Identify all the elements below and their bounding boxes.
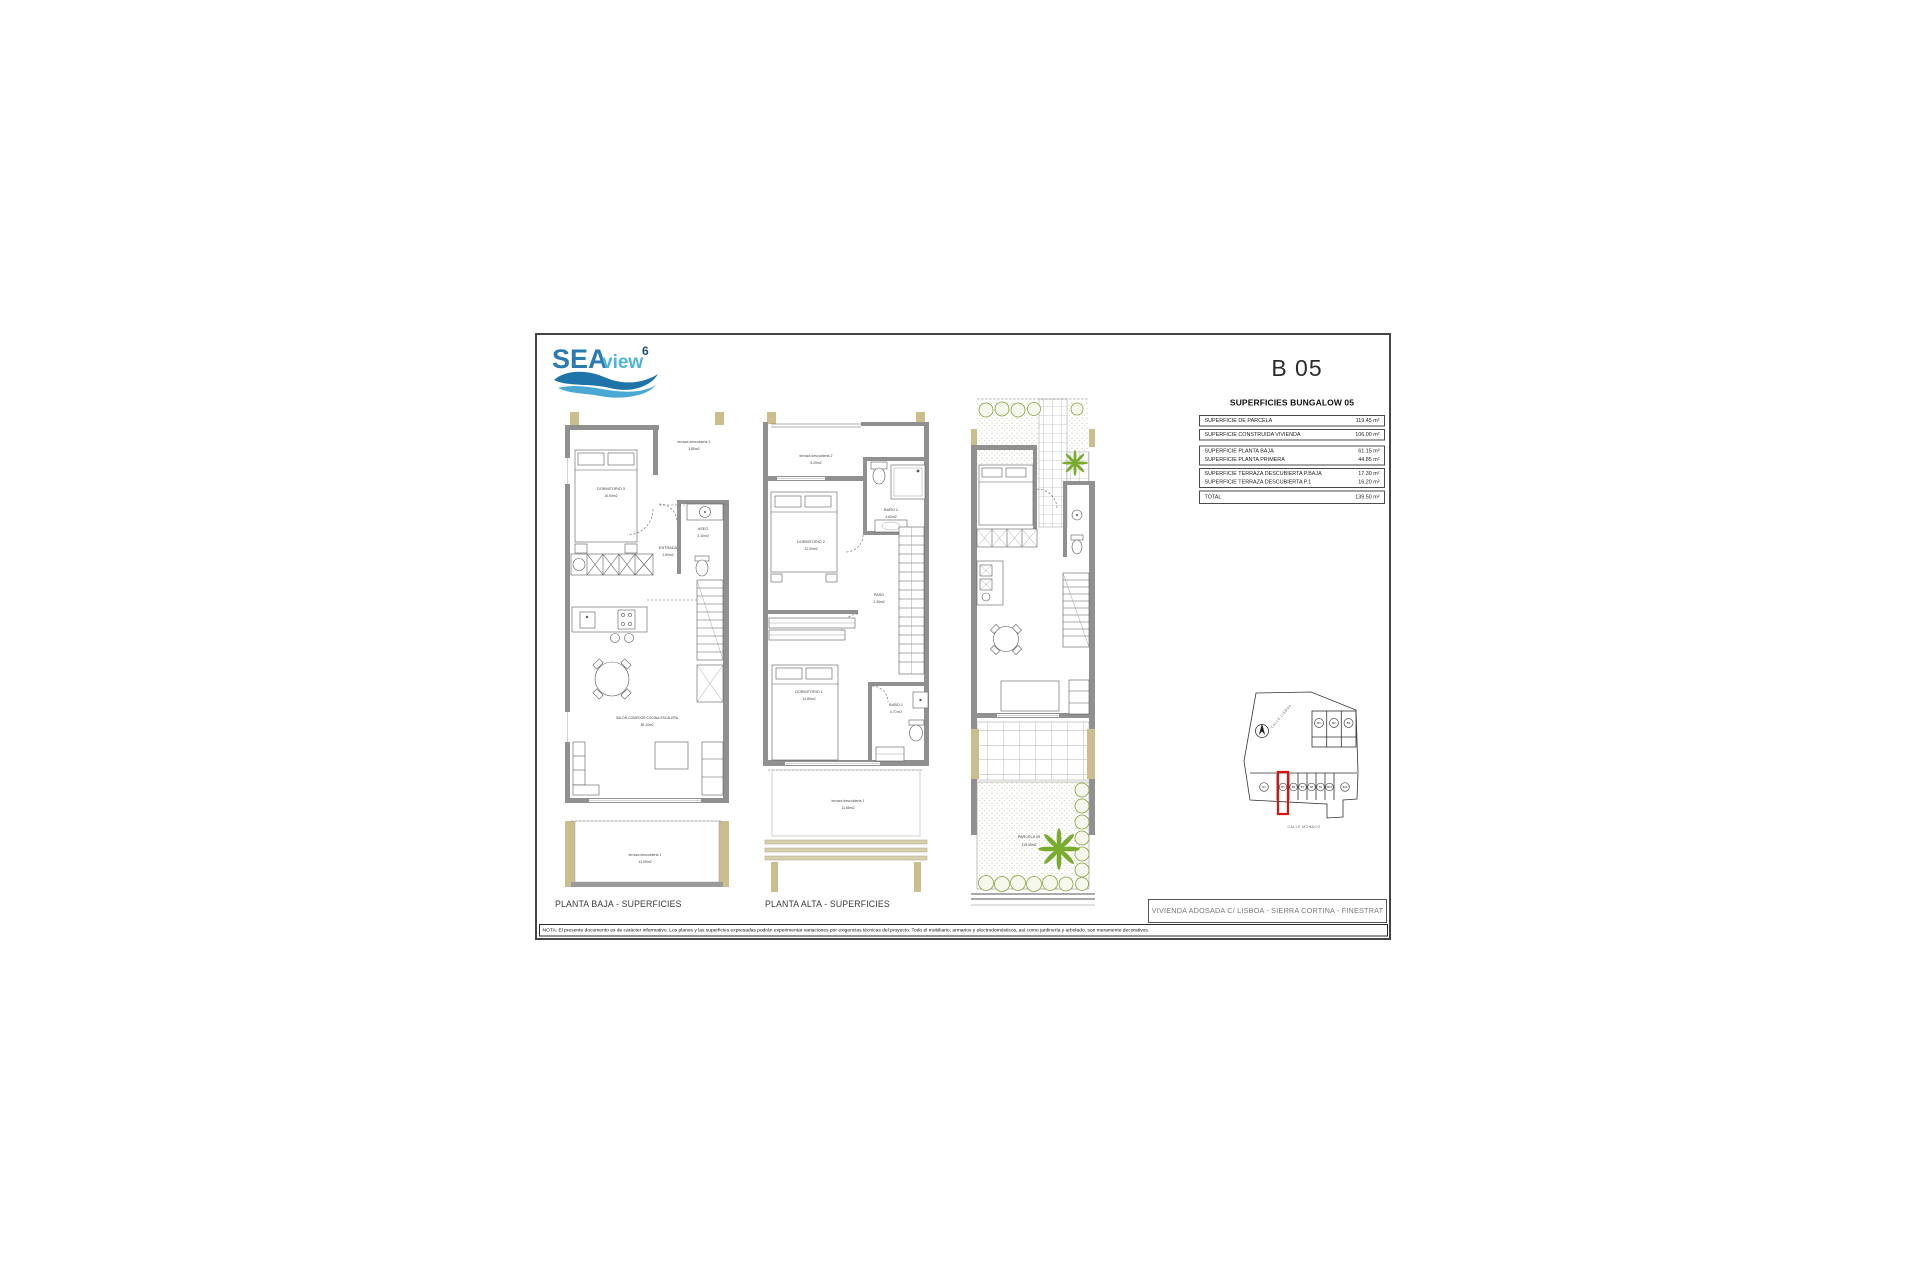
table-row: SUPERFICIE DE PARCELA119.45 m²: [1199, 415, 1385, 427]
tiled-terrace: [977, 722, 1089, 780]
svg-text:3.80m2: 3.80m2: [688, 447, 699, 451]
title-block: VIVIENDA ADOSADA C/ LISBOA - SIERRA CORT…: [1148, 899, 1387, 923]
block-top: B1 B2 B3: [1312, 711, 1356, 747]
tv-unit: [702, 742, 723, 795]
highlighted-unit-b5: [1278, 772, 1288, 814]
table-row: SUPERFICIE TERRAZA DESCUBIERTA P.BAJA17.…: [1199, 468, 1385, 488]
nota-strip: NOTA: El presente documento es de caráct…: [539, 924, 1388, 937]
label-paso: PASO: [874, 593, 884, 597]
areas-panel: SUPERFICIES BUNGALOW 05 SUPERFICIE DE PA…: [1147, 395, 1387, 505]
label-aseo: ASEO: [698, 527, 709, 531]
label-salon: SALÓN-COMEDOR-COCINA-ESCALERA: [616, 715, 679, 720]
site-unit-b9: B9: [1319, 785, 1323, 789]
svg-text:4.70 m2: 4.70 m2: [890, 710, 902, 714]
table-row-total: TOTAL139.50 m²: [1199, 491, 1385, 505]
svg-text:13.90m2: 13.90m2: [638, 860, 651, 864]
bathroom2-fixtures: [871, 462, 925, 532]
drawing-frame: SEA view 6 B 05: [535, 333, 1391, 940]
terrace-edge: [571, 882, 723, 887]
sofa: [573, 742, 599, 795]
site-unit-b8: B8: [1310, 785, 1314, 789]
site-unit-b5: B5: [1281, 785, 1285, 789]
coffee-table: [655, 742, 688, 769]
svg-text:2.30m2: 2.30m2: [873, 600, 884, 604]
unit-code: B 05: [1237, 355, 1357, 382]
stairs: [1063, 573, 1089, 647]
coffee-table: [1001, 681, 1059, 711]
label-terraza-1: terraza descubierta 1: [629, 853, 662, 857]
site-unit-b2: B2: [1332, 721, 1336, 725]
street-label-top: CALLE LISBOA: [1270, 703, 1292, 729]
bed: [979, 465, 1033, 525]
table-row: SUPERFICIE PLANTA BAJA61.15 m² SUPERFICI…: [1199, 446, 1385, 466]
north-arrow-icon: [1256, 724, 1269, 738]
areas-heading: SUPERFICIES BUNGALOW 05: [1199, 398, 1385, 408]
wave-icon: [554, 372, 658, 398]
label-banyo-2: BAÑO 2: [884, 507, 898, 512]
svg-text:38.10m2: 38.10m2: [640, 723, 653, 727]
label-parcela: PARCELA 05: [1018, 835, 1041, 839]
svg-text:12.00m2: 12.00m2: [804, 547, 817, 551]
plan-title-baja: PLANTA BAJA - SUPERFICIES: [555, 899, 682, 910]
dining-table: [593, 659, 631, 699]
label-dormitorio-1: DORMITORIO 1: [795, 690, 823, 694]
svg-text:4.60m2: 4.60m2: [885, 515, 896, 519]
logo-text-sea: SEA: [552, 344, 608, 374]
plan-parcela: PARCELA 05 119.45m2: [971, 397, 1095, 913]
label-entrada: ENTRADA: [659, 546, 678, 550]
svg-text:10.00m2: 10.00m2: [604, 494, 617, 498]
seaview-logo: SEA view 6: [550, 340, 674, 400]
street-edge: [971, 894, 1095, 905]
stairs: [899, 527, 924, 674]
site-unit-b3: B3: [1347, 721, 1351, 725]
label-terraza-2: terraza descubierta 2: [678, 440, 711, 444]
entry-door-arc: [659, 504, 677, 522]
bathroom-fixtures: [1071, 510, 1083, 554]
site-unit-b10: B10: [1327, 785, 1332, 789]
label-banyo-1: BAÑO 1: [889, 702, 903, 707]
wardrobe: [977, 529, 1037, 547]
logo-sup-6: 6: [642, 344, 649, 358]
svg-text:2.60m2: 2.60m2: [662, 553, 673, 557]
label-dormitorio-3: DORMITORIO 3: [597, 487, 625, 491]
block-bottom: B4 B5 B6 B7 B8 B9 B10 B11: [1250, 773, 1357, 800]
areas-table: SUPERFICIE DE PARCELA119.45 m² SUPERFICI…: [1199, 415, 1385, 507]
pergola: [765, 840, 927, 892]
plan-planta-alta: terraza descubierta 2 5.20m2 BAÑO 2 4.60…: [763, 412, 929, 892]
label-terraza-2: terraza descubierta 2: [800, 454, 833, 458]
wardrobe: [571, 554, 653, 575]
svg-text:5.20m2: 5.20m2: [810, 461, 821, 465]
bed-dormitorio-3: [575, 450, 637, 553]
plan-title-alta: PLANTA ALTA - SUPERFICIES: [765, 899, 890, 910]
kitchen: [977, 561, 1003, 605]
site-unit-b6: B6: [1292, 785, 1296, 789]
table-row: SUPERFICIE CONSTRUIDA VIVIENDA106.00 m²: [1199, 429, 1385, 441]
logo-text-view: view: [602, 352, 643, 373]
svg-text:14.80m2: 14.80m2: [802, 697, 815, 701]
street-label-bottom: CALLE MÓNACO: [1288, 824, 1321, 829]
site-unit-b7: B7: [1301, 785, 1305, 789]
kitchen-island: [572, 607, 647, 643]
svg-text:3.10m2: 3.10m2: [697, 534, 708, 538]
plan-planta-baja: DORMITORIO 3 10.00m2 terraza descubierta…: [565, 412, 729, 892]
site-plan: B1 B2 B3 B4 B5 B6 B7 B8 B9 B10 B11: [1232, 687, 1372, 835]
dining-table: [990, 624, 1021, 654]
site-unit-b11: B11: [1343, 785, 1348, 789]
label-terraza-1: terraza descubierta 1: [832, 799, 865, 803]
stairs: [697, 580, 723, 702]
label-dormitorio-2: DORMITORIO 2: [797, 540, 825, 544]
sofa: [1069, 680, 1089, 714]
bed-dormitorio-1: [772, 665, 838, 760]
site-unit-b1: B1: [1317, 721, 1321, 725]
terrace-railing: [771, 424, 861, 427]
site-unit-b4: B4: [1262, 785, 1266, 789]
bed-dormitorio-2: [771, 492, 837, 582]
svg-text:119.45m2: 119.45m2: [1022, 843, 1037, 847]
aseo-fixtures: [687, 504, 723, 576]
svg-text:11.55m2: 11.55m2: [842, 806, 855, 810]
closets: [769, 618, 855, 640]
